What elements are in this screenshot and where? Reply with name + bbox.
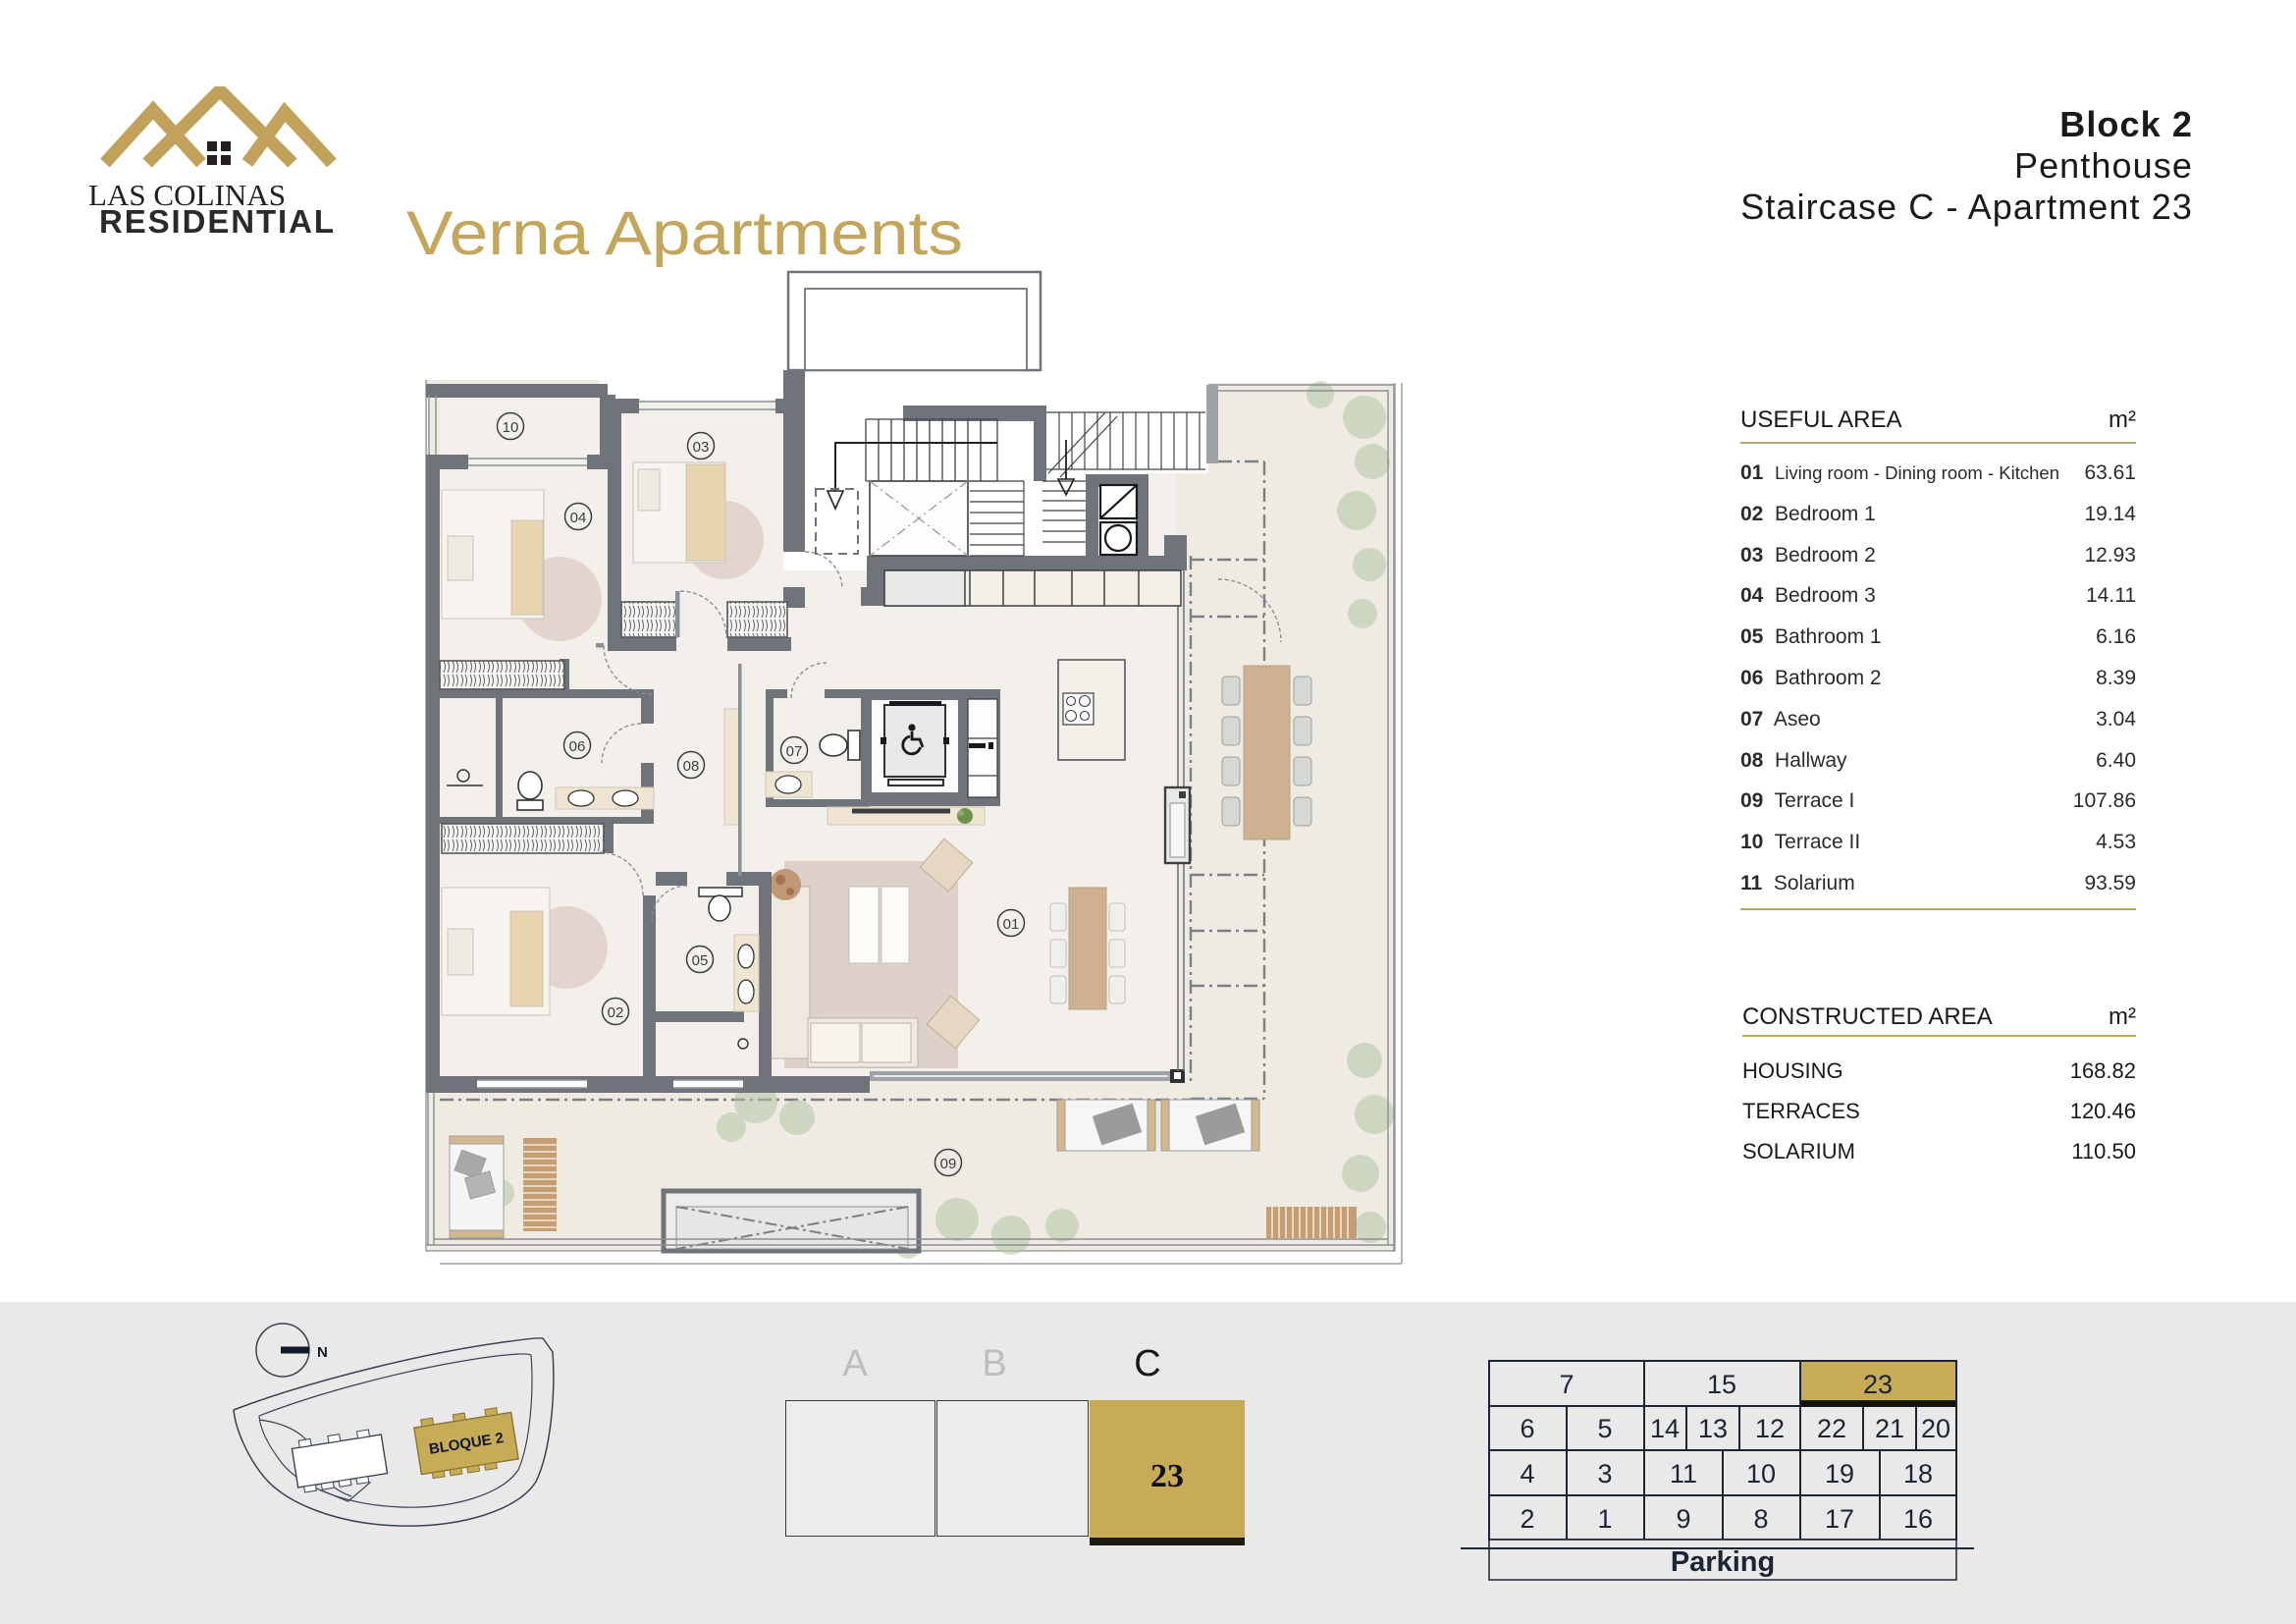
svg-text:12: 12 — [1755, 1414, 1785, 1443]
svg-text:3: 3 — [1597, 1459, 1612, 1489]
svg-text:08: 08 — [683, 758, 700, 775]
svg-text:03: 03 — [693, 439, 710, 456]
svg-text:22: 22 — [1817, 1414, 1846, 1443]
svg-text:17: 17 — [1825, 1504, 1854, 1534]
svg-text:10: 10 — [503, 419, 519, 436]
svg-text:19: 19 — [1825, 1459, 1854, 1489]
svg-text:RESIDENTIAL: RESIDENTIAL — [99, 203, 334, 240]
svg-text:16: 16 — [1903, 1504, 1933, 1534]
svg-text:1: 1 — [1597, 1504, 1612, 1534]
svg-text:13: 13 — [1698, 1414, 1728, 1443]
svg-text:01: 01 — [1003, 916, 1020, 933]
svg-text:11: 11 — [1670, 1459, 1697, 1489]
svg-text:Verna Apartments: Verna Apartments — [406, 199, 963, 268]
svg-text:04: 04 — [570, 510, 587, 526]
svg-text:05: 05 — [692, 952, 709, 969]
svg-text:23: 23 — [1863, 1370, 1893, 1399]
svg-text:07: 07 — [786, 743, 803, 760]
svg-text:15: 15 — [1707, 1370, 1736, 1399]
svg-text:09: 09 — [940, 1156, 957, 1172]
svg-text:06: 06 — [569, 738, 586, 755]
svg-text:14: 14 — [1650, 1414, 1680, 1443]
svg-text:10: 10 — [1746, 1459, 1776, 1489]
svg-text:8: 8 — [1753, 1504, 1768, 1534]
svg-text:18: 18 — [1903, 1459, 1933, 1489]
svg-text:20: 20 — [1921, 1414, 1950, 1443]
svg-text:02: 02 — [608, 1004, 624, 1021]
svg-text:2: 2 — [1520, 1504, 1534, 1534]
svg-text:5: 5 — [1597, 1414, 1612, 1443]
svg-text:9: 9 — [1676, 1504, 1690, 1534]
svg-text:6: 6 — [1520, 1414, 1534, 1443]
svg-text:21: 21 — [1875, 1414, 1904, 1443]
svg-text:4: 4 — [1520, 1459, 1534, 1489]
svg-text:Parking: Parking — [1671, 1546, 1775, 1578]
svg-text:7: 7 — [1559, 1370, 1574, 1399]
